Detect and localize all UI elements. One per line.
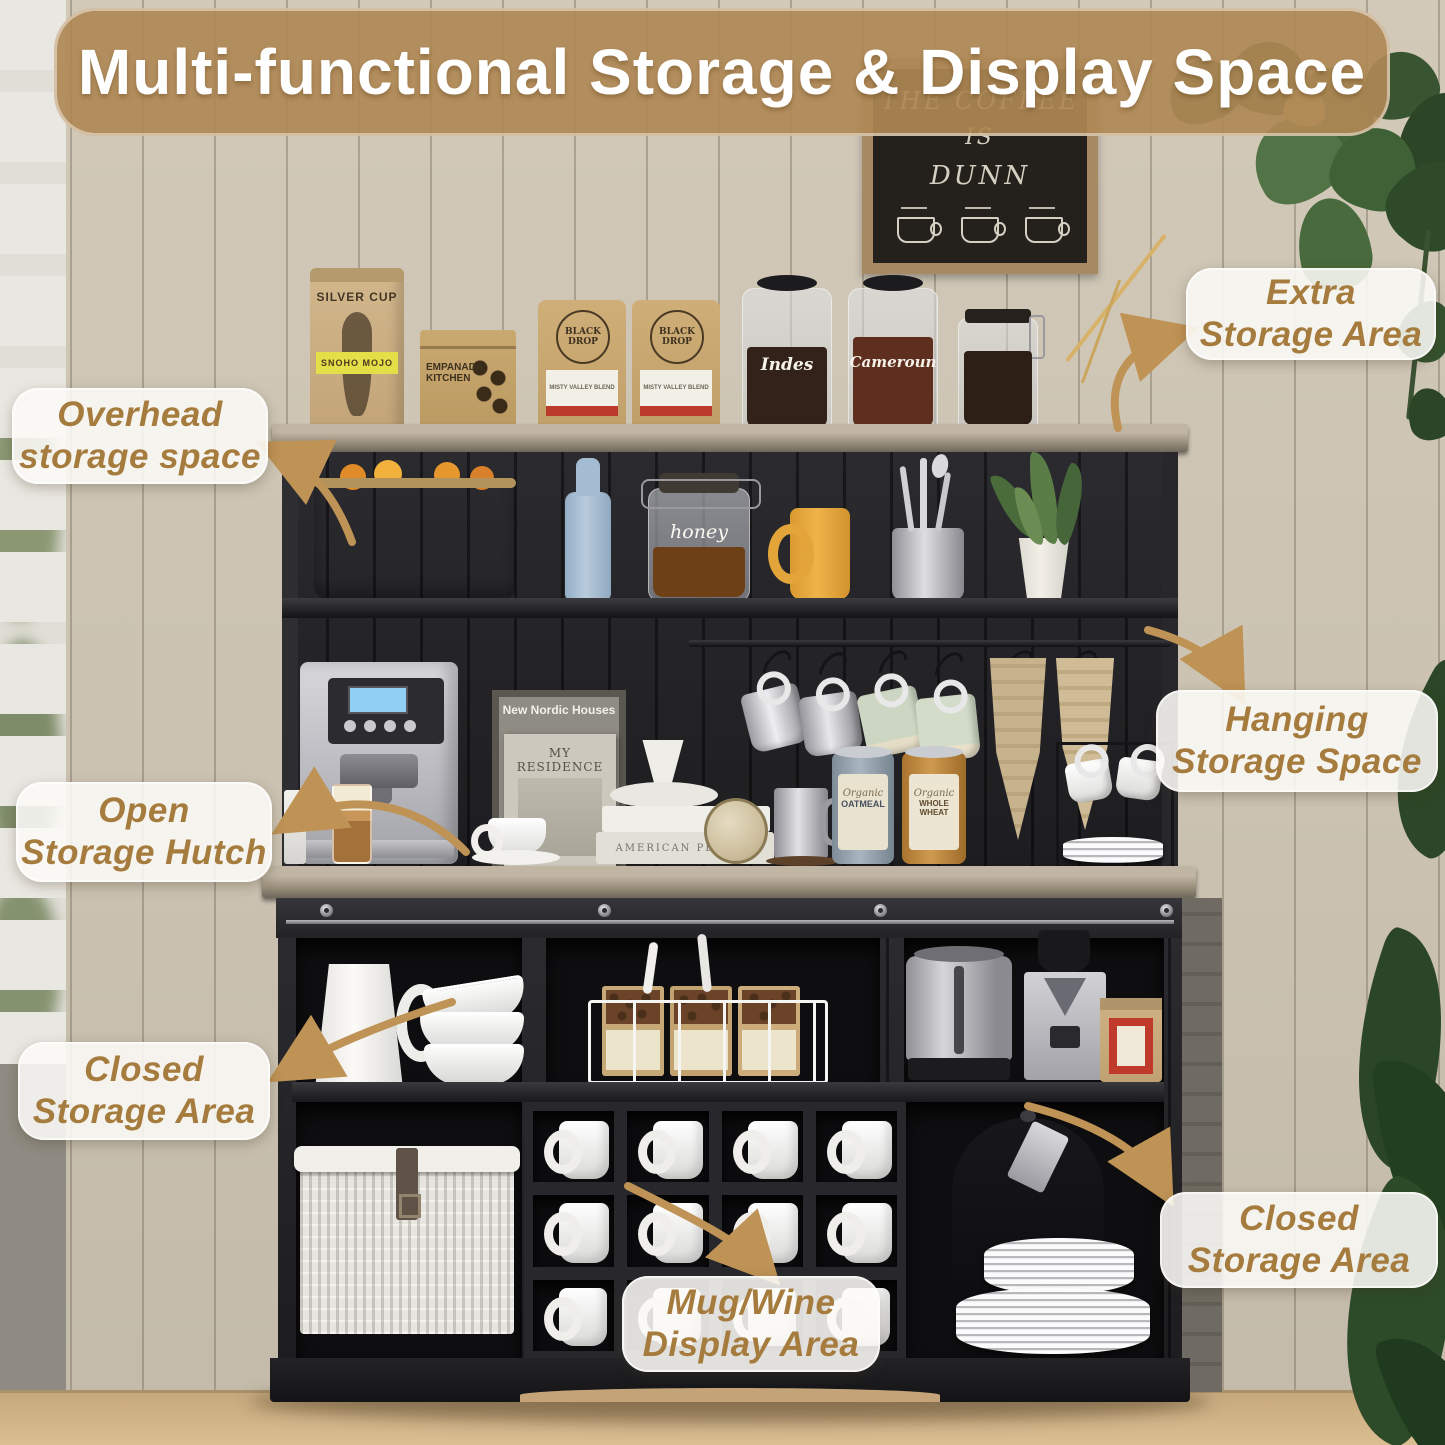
jar-lid bbox=[965, 309, 1031, 323]
callout-line: Storage Area bbox=[1188, 1240, 1411, 1282]
callout-line: Hanging bbox=[1225, 699, 1368, 741]
mug-handle bbox=[768, 524, 814, 584]
cabinet-side-panel bbox=[1182, 898, 1222, 1392]
counter-slab bbox=[262, 866, 1196, 898]
clamp-jar-beans bbox=[958, 318, 1038, 432]
machine-button bbox=[384, 720, 396, 732]
grinder-hopper bbox=[1038, 930, 1090, 972]
kraft-box-empanada: EMPANADA KITCHEN bbox=[420, 330, 516, 430]
callout-line: Mug/Wine bbox=[667, 1282, 836, 1324]
callout-line: Display Area bbox=[643, 1324, 860, 1366]
tin-label: Organic WHOLE WHEAT bbox=[909, 774, 959, 850]
title-banner: Multi-functional Storage & Display Space bbox=[54, 8, 1390, 136]
basket-rim bbox=[314, 478, 516, 488]
callout-open-hutch: Open Storage Hutch bbox=[16, 782, 272, 882]
chalk-doodle bbox=[1029, 207, 1055, 209]
jar-lid bbox=[863, 275, 923, 291]
callout-closed-storage-right: Closed Storage Area bbox=[1160, 1192, 1438, 1288]
magazine-title: MY RESIDENCE bbox=[504, 746, 616, 774]
label-text: MISTY VALLEY BLEND bbox=[643, 385, 708, 391]
logo-text: BLACK DROP bbox=[558, 327, 608, 347]
hanging-rail bbox=[688, 640, 1172, 647]
cubby bbox=[722, 1111, 803, 1182]
coffee-bag-red-label bbox=[1100, 998, 1162, 1082]
white-mug bbox=[653, 1121, 703, 1179]
page-title: Multi-functional Storage & Display Space bbox=[78, 35, 1366, 109]
box-lid-line bbox=[420, 346, 516, 349]
callout-line: Closed bbox=[84, 1049, 204, 1091]
side-dishes bbox=[284, 790, 306, 864]
callout-line: Extra bbox=[1266, 272, 1356, 314]
saucer bbox=[472, 850, 560, 865]
cloche-tag bbox=[1006, 1120, 1069, 1193]
white-mug bbox=[653, 1203, 703, 1263]
book-title: New Nordic Houses bbox=[499, 703, 619, 717]
jar-contents bbox=[653, 547, 745, 597]
coffee-bag-silver-cup: SILVER CUP SNOHO MOJO bbox=[310, 268, 404, 430]
white-mug bbox=[559, 1288, 607, 1346]
espresso-machine bbox=[300, 662, 458, 864]
orange-mug bbox=[790, 508, 850, 600]
glass-jar-cameroun: Cameroun bbox=[848, 288, 938, 432]
plant-pot bbox=[1014, 538, 1074, 600]
box-brand-line2: KITCHEN bbox=[426, 373, 484, 384]
callout-line: Storage Area bbox=[1200, 314, 1423, 356]
wicker-hamper bbox=[300, 1156, 514, 1334]
cubby bbox=[627, 1195, 708, 1266]
white-mug bbox=[559, 1203, 609, 1263]
rail-roller bbox=[874, 904, 887, 917]
label-stripe bbox=[640, 406, 712, 416]
callout-hanging-storage: Hanging Storage Space bbox=[1156, 690, 1438, 792]
cloche-knob bbox=[1020, 1110, 1036, 1122]
jar-clamp bbox=[641, 479, 761, 509]
logo-text: BLACK DROP bbox=[652, 327, 702, 347]
window-slats bbox=[0, 0, 66, 1064]
window bbox=[0, 0, 66, 1064]
label: MISTY VALLEY BLEND bbox=[640, 370, 712, 406]
jar-label: Cameroun bbox=[849, 353, 937, 371]
wicker-basket bbox=[314, 478, 516, 600]
cubby bbox=[533, 1280, 614, 1351]
brand-text: SILVER CUP bbox=[310, 290, 404, 304]
rail-track bbox=[286, 920, 1174, 924]
rail-roller bbox=[598, 904, 611, 917]
logo-ring: BLACK DROP bbox=[556, 310, 610, 364]
blue-bottle bbox=[565, 492, 611, 600]
bag-fold bbox=[1100, 998, 1162, 1010]
cubby bbox=[627, 1111, 708, 1182]
white-cup bbox=[1064, 757, 1114, 804]
milk-pitcher bbox=[774, 788, 828, 862]
glass-jar-indes: Indes bbox=[742, 288, 832, 432]
chalk-doodle bbox=[901, 207, 927, 209]
rail-roller bbox=[320, 904, 333, 917]
jar-lid bbox=[757, 275, 817, 291]
machine-lcd bbox=[348, 686, 408, 714]
cubby bbox=[816, 1195, 897, 1266]
wire-basket bbox=[588, 1000, 828, 1084]
chalk-cup-icon bbox=[961, 217, 999, 243]
cutlery bbox=[920, 458, 927, 532]
label-box bbox=[1117, 1026, 1145, 1066]
callout-line: Storage Area bbox=[33, 1091, 256, 1133]
callout-extra-storage: Extra Storage Area bbox=[1186, 268, 1436, 360]
cubby bbox=[722, 1195, 803, 1266]
urn-sight-glass bbox=[954, 966, 964, 1054]
chalk-cup-icon bbox=[897, 217, 935, 243]
tin-lid bbox=[834, 746, 892, 758]
bottle-neck bbox=[576, 458, 600, 496]
callout-line: Overhead bbox=[57, 394, 222, 436]
herb-plant bbox=[992, 452, 1096, 600]
white-mug bbox=[842, 1203, 892, 1263]
lower-middle-shelf bbox=[292, 1082, 1164, 1102]
tin-label-script: Organic bbox=[909, 788, 959, 799]
callout-line: Storage Hutch bbox=[21, 832, 267, 874]
plinth-arch bbox=[520, 1388, 940, 1402]
cubby bbox=[533, 1111, 614, 1182]
callout-line: Open bbox=[98, 790, 189, 832]
label-text: MISTY VALLEY BLEND bbox=[549, 385, 614, 391]
chalk-cup-icon bbox=[1025, 217, 1063, 243]
box-brand: EMPANADA KITCHEN bbox=[426, 362, 484, 384]
drip-tray bbox=[304, 840, 454, 858]
jar-contents bbox=[853, 337, 933, 427]
coffee-grinder bbox=[1022, 930, 1108, 1082]
white-mug bbox=[748, 1121, 798, 1179]
cubby bbox=[533, 1195, 614, 1266]
tin-whole-wheat: Organic WHOLE WHEAT bbox=[902, 752, 966, 864]
machine-button bbox=[404, 720, 416, 732]
white-mug bbox=[748, 1203, 798, 1263]
saucer-stack bbox=[1063, 837, 1163, 863]
utensil-cup bbox=[892, 528, 964, 600]
callout-mug-wine: Mug/Wine Display Area bbox=[622, 1276, 880, 1372]
logo-ring: BLACK DROP bbox=[650, 310, 704, 364]
callout-line: Closed bbox=[1239, 1198, 1359, 1240]
tin-label-name: WHOLE WHEAT bbox=[909, 799, 959, 817]
honey-jar: honey bbox=[648, 488, 750, 602]
product-image: THE COFFEE IS DUNN bbox=[0, 0, 1445, 1445]
bag-label bbox=[1109, 1018, 1153, 1074]
chalk-doodle bbox=[965, 207, 991, 209]
urn-lid bbox=[914, 946, 1004, 962]
coaster bbox=[766, 856, 840, 866]
coffee-bag-black-drop-1: BLACK DROP MISTY VALLEY BLEND bbox=[538, 300, 626, 430]
grinder-window bbox=[1050, 1026, 1080, 1048]
chalkboard-line3: DUNN bbox=[873, 161, 1087, 191]
coffee-urn bbox=[906, 946, 1012, 1082]
white-mug bbox=[842, 1121, 892, 1179]
tin-lid bbox=[905, 746, 963, 758]
machine-button bbox=[344, 720, 356, 732]
tin-oatmeal: Organic OATMEAL bbox=[832, 752, 894, 864]
machine-button bbox=[364, 720, 376, 732]
callout-closed-storage-left: Closed Storage Area bbox=[18, 1042, 270, 1140]
overhead-shelf-board bbox=[282, 598, 1178, 618]
jar-label: Indes bbox=[743, 355, 831, 375]
callout-overhead-storage: Overhead storage space bbox=[12, 388, 268, 484]
round-ornament bbox=[704, 798, 768, 864]
honey-label: honey bbox=[649, 521, 749, 543]
bag-fold bbox=[310, 268, 404, 282]
tin-label: Organic OATMEAL bbox=[838, 774, 888, 850]
label-stripe bbox=[546, 406, 618, 416]
group-head bbox=[340, 754, 418, 788]
latte-glass bbox=[332, 784, 372, 864]
tin-label-name: OATMEAL bbox=[838, 799, 888, 809]
top-shelf-board bbox=[272, 424, 1188, 452]
badge-text: SNOHO MOJO bbox=[321, 358, 393, 368]
plate-stack-large bbox=[956, 1288, 1150, 1354]
box-brand-line1: EMPANADA bbox=[426, 362, 484, 373]
cubby bbox=[816, 1111, 897, 1182]
callout-line: storage space bbox=[19, 436, 261, 478]
rail-roller bbox=[1160, 904, 1173, 917]
tin-label-script: Organic bbox=[838, 788, 888, 799]
label: MISTY VALLEY BLEND bbox=[546, 370, 618, 406]
jar-contents bbox=[964, 351, 1032, 425]
strap-buckle bbox=[399, 1194, 421, 1218]
badge: SNOHO MOJO bbox=[316, 352, 398, 374]
plate-stack-small bbox=[984, 1238, 1134, 1294]
sculpture-base bbox=[610, 782, 718, 808]
urn-base bbox=[908, 1058, 1010, 1080]
coffee-bag-black-drop-2: BLACK DROP MISTY VALLEY BLEND bbox=[632, 300, 720, 430]
teacup bbox=[488, 818, 546, 854]
callout-line: Storage Space bbox=[1172, 741, 1422, 783]
white-mug bbox=[559, 1121, 609, 1179]
